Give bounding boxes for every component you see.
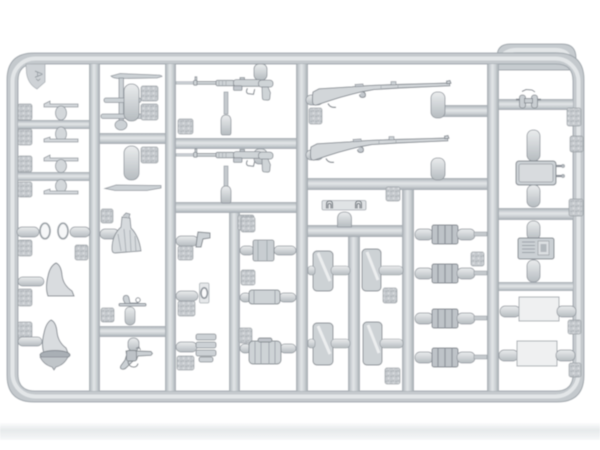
svg-text:A›: A› bbox=[32, 71, 44, 82]
